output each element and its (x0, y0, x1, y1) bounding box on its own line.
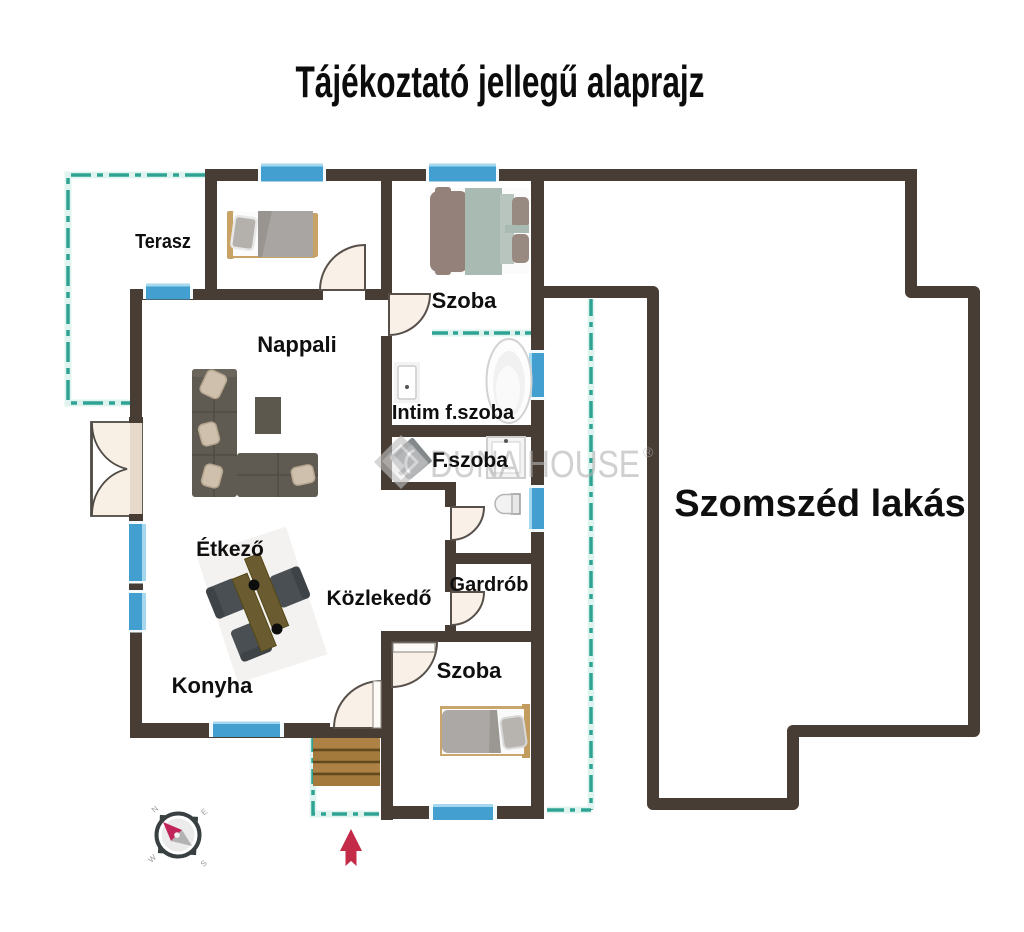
svg-text:Nappali: Nappali (257, 332, 336, 357)
svg-text:F.szoba: F.szoba (432, 449, 508, 472)
svg-text:Konyha: Konyha (172, 673, 253, 698)
svg-text:Intim f.szoba: Intim f.szoba (392, 402, 515, 424)
svg-text:Szomszéd lakás: Szomszéd lakás (674, 483, 965, 525)
svg-text:Szoba: Szoba (432, 288, 498, 313)
svg-text:Tájékoztató jellegű alaprajz: Tájékoztató jellegű alaprajz (296, 58, 705, 108)
svg-text:Étkező: Étkező (196, 538, 264, 561)
svg-text:Közlekedő: Közlekedő (326, 587, 431, 610)
svg-text:Terasz: Terasz (135, 231, 191, 253)
svg-text:Gardrób: Gardrób (450, 574, 529, 596)
svg-text:Szoba: Szoba (437, 658, 503, 683)
svg-text:®: ® (643, 444, 654, 460)
